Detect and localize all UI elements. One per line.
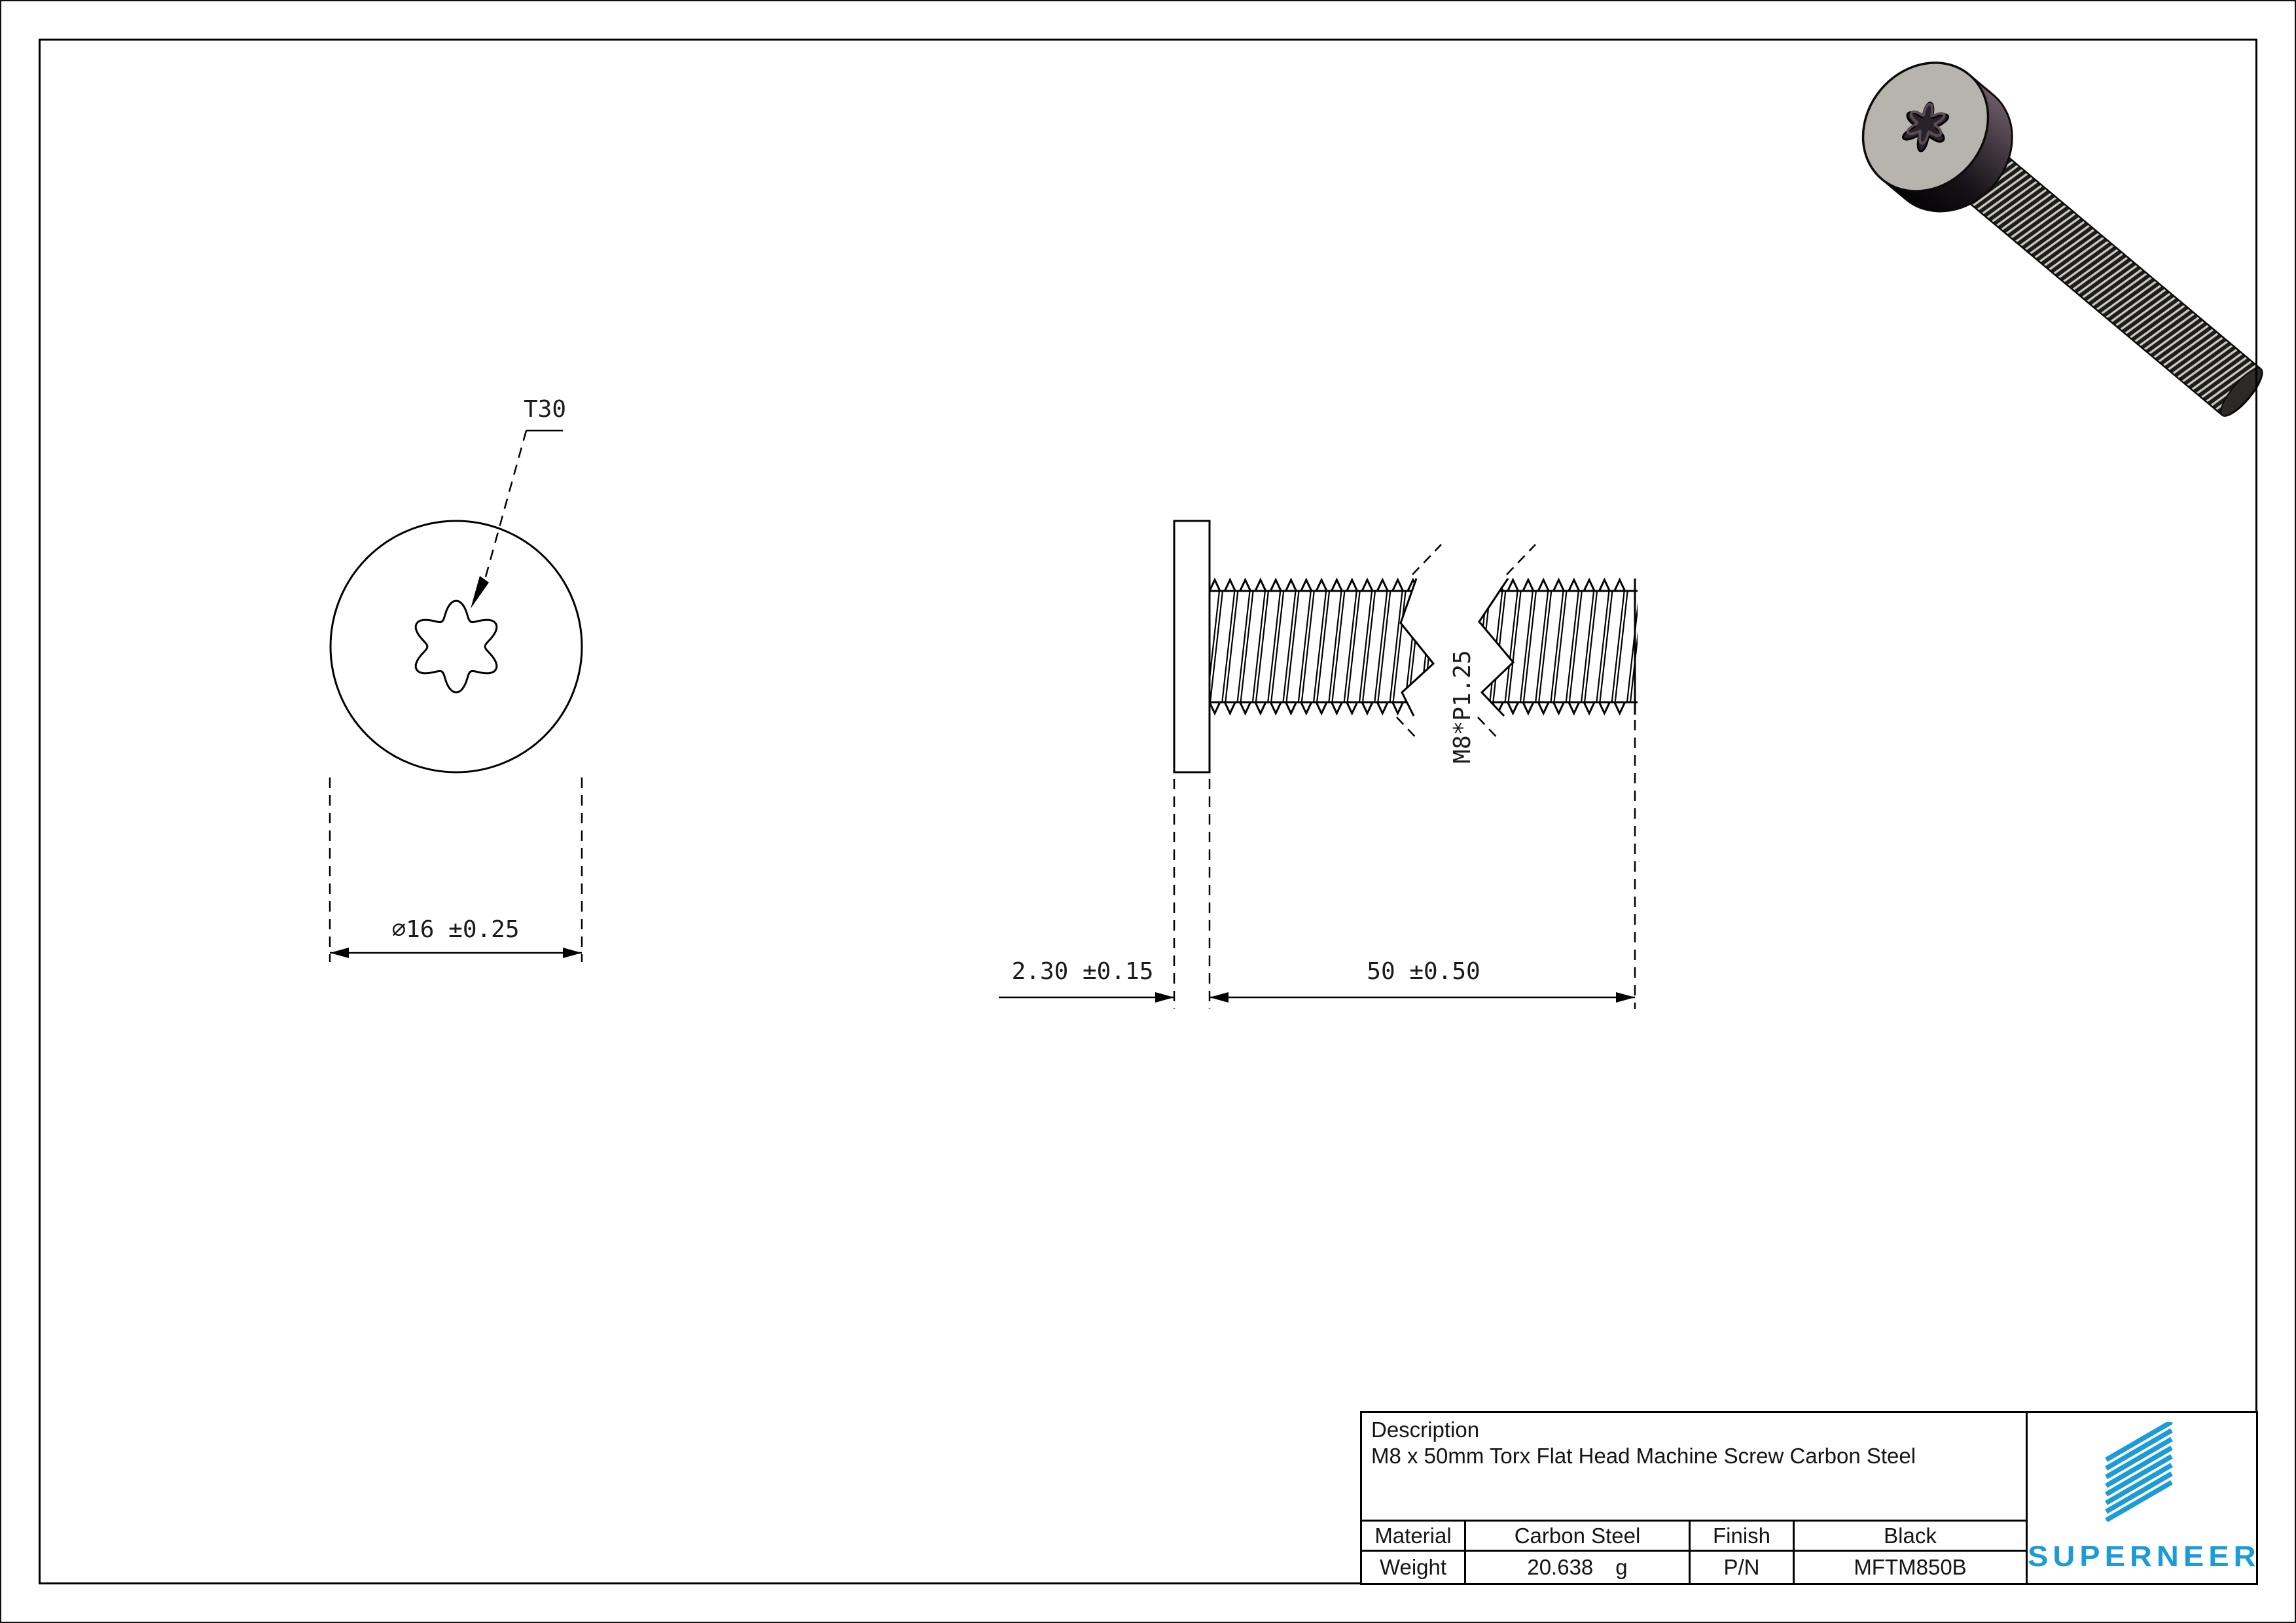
- description-label: Description: [1371, 1417, 1479, 1443]
- weight-label-cell: Weight: [1362, 1552, 1466, 1583]
- brand-logo: [2105, 1422, 2173, 1522]
- striped-flag-icon: [2105, 1422, 2173, 1522]
- title-block: Description M8 x 50mm Torx Flat Head Mac…: [1360, 1411, 2258, 1585]
- brand-wordmark: SUPERNEER: [2028, 1539, 2253, 1573]
- head-diameter-dimension: ⌀16 ±0.25: [351, 916, 560, 943]
- weight-unit: g: [1615, 1555, 1627, 1580]
- drawing-sheet: T30 ⌀16 ±0.25 2.30 ±0.15 50 ±0.50 M8*P1.…: [0, 0, 2296, 1623]
- head-thickness-dimension: 2.30 ±0.15: [971, 958, 1194, 985]
- pn-label-cell: P/N: [1691, 1552, 1795, 1583]
- pn-value-cell: MFTM850B: [1795, 1552, 2028, 1583]
- drawing-frame-border: [39, 39, 2257, 1584]
- weight-value-cell: 20.638 g: [1466, 1552, 1691, 1583]
- material-label-cell: Material: [1362, 1522, 1466, 1552]
- thread-spec-label: M8*P1.25: [1447, 596, 1479, 818]
- brand-cell: SUPERNEER: [2028, 1413, 2256, 1583]
- thread-length-dimension: 50 ±0.50: [1312, 958, 1535, 985]
- material-value-cell: Carbon Steel: [1466, 1522, 1691, 1552]
- weight-value: 20.638: [1527, 1555, 1593, 1580]
- description-value: M8 x 50mm Torx Flat Head Machine Screw C…: [1371, 1443, 1916, 1469]
- torx-size-label: T30: [524, 396, 566, 423]
- description-cell: Description M8 x 50mm Torx Flat Head Mac…: [1362, 1413, 2028, 1522]
- finish-value-cell: Black: [1795, 1522, 2028, 1552]
- finish-label-cell: Finish: [1691, 1522, 1795, 1552]
